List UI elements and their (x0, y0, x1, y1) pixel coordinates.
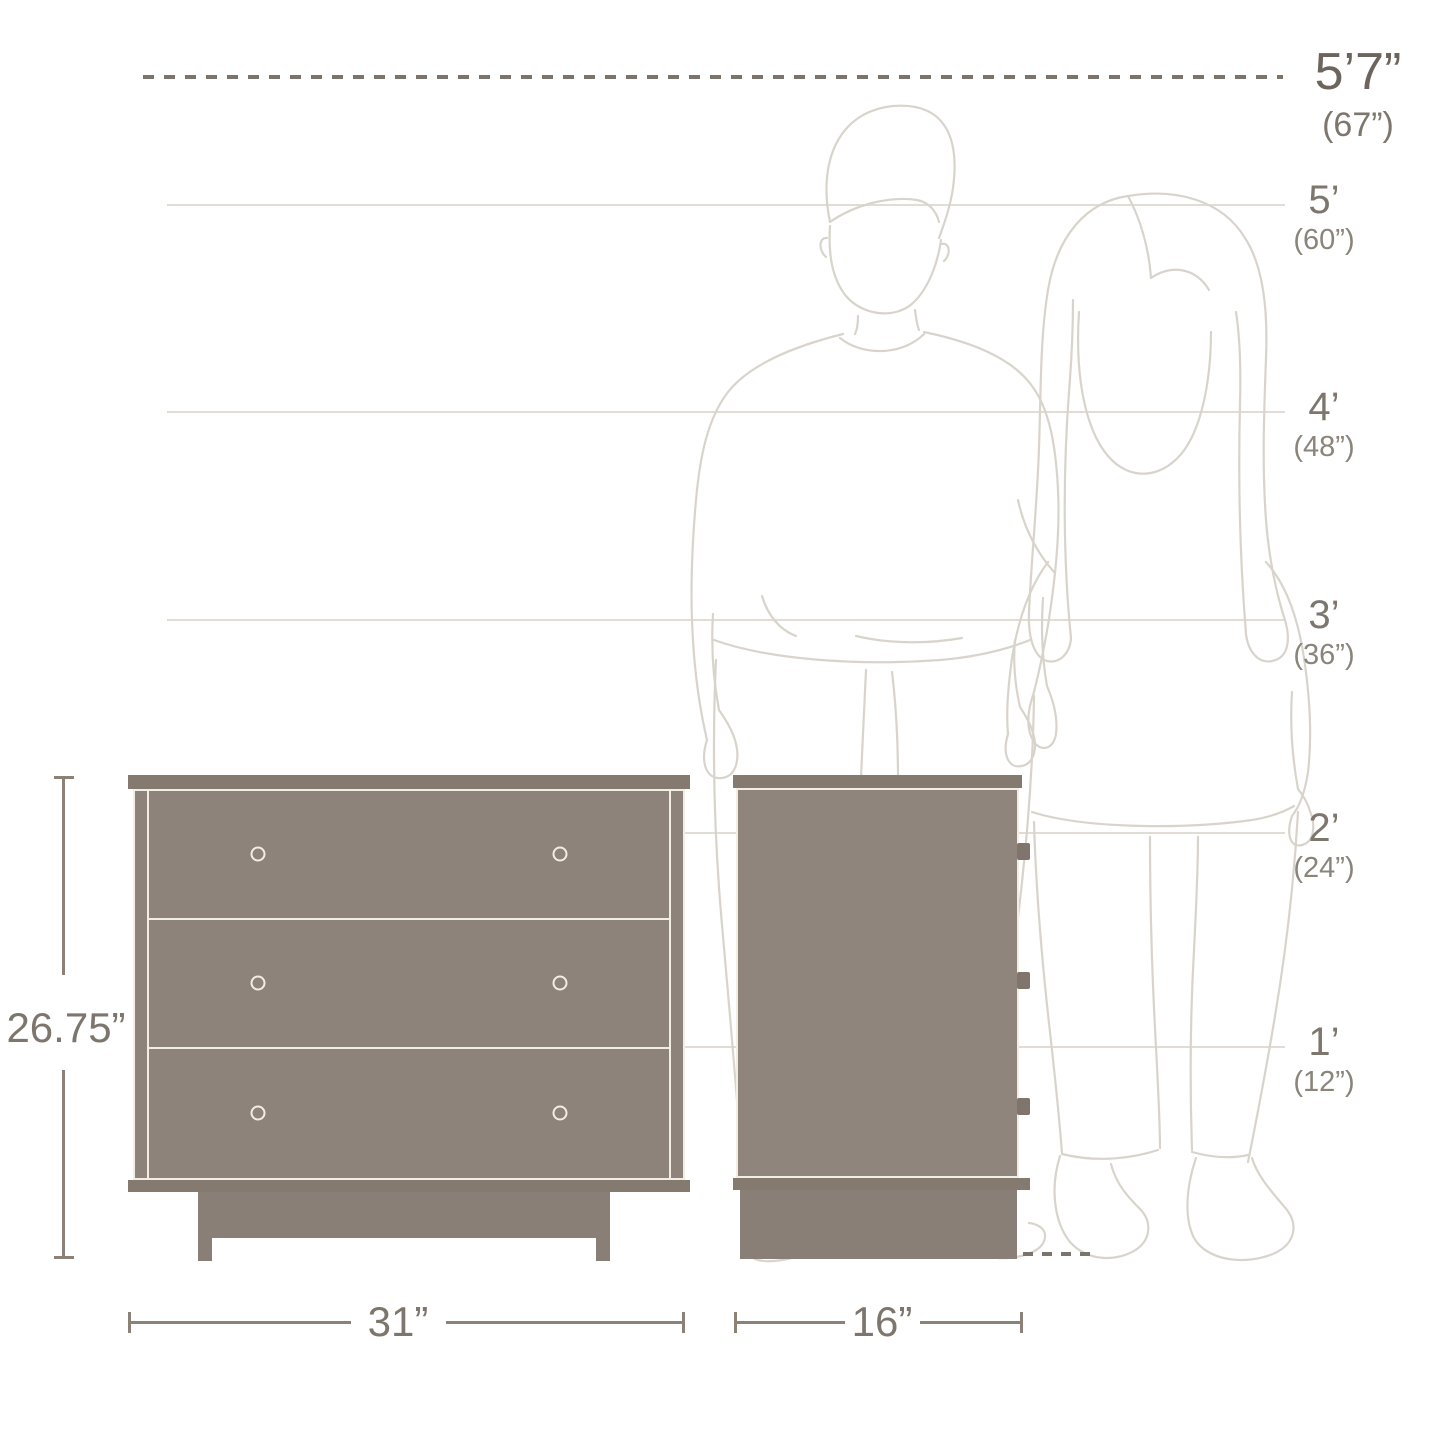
height-dimension-line (62, 1070, 65, 1258)
dresser-leg (596, 1192, 610, 1261)
dresser-side-top-edge (733, 775, 1022, 788)
height-marker-feet: 5’7” (1278, 46, 1438, 98)
height-marker-feet: 2’ (1244, 808, 1404, 848)
drawer-pull-icon (1017, 843, 1030, 860)
depth-dimension-line (920, 1321, 1022, 1324)
drawer-knob-icon (552, 976, 567, 991)
drawer-stack (147, 791, 671, 1178)
max-height-dashed-line (143, 75, 1283, 79)
drawer-bottom (149, 1049, 669, 1178)
height-marker-feet: 4’ (1244, 387, 1404, 427)
dresser-top-edge (128, 775, 690, 789)
drawer-top (149, 791, 669, 920)
height-marker-4ft: 4’ (48”) (1244, 387, 1404, 462)
dresser-side-body (736, 788, 1019, 1178)
height-marker-inches: (48”) (1244, 433, 1404, 462)
drawer-knob-icon (251, 976, 266, 991)
woman-outline (1006, 194, 1314, 1260)
height-marker-inches: (24”) (1244, 854, 1404, 883)
height-marker-5ft7: 5’7” (67”) (1278, 46, 1438, 142)
height-dimension-line (62, 777, 65, 975)
height-marker-1ft: 1’ (12”) (1244, 1022, 1404, 1097)
drawer-pull-icon (1017, 972, 1030, 989)
height-marker-feet: 3’ (1244, 595, 1404, 635)
dresser-side-view (733, 775, 1022, 1259)
drawer-knob-icon (251, 847, 266, 862)
height-marker-feet: 5’ (1244, 180, 1404, 220)
drawer-knob-icon (552, 1106, 567, 1121)
height-marker-inches: (60”) (1244, 226, 1404, 255)
width-dimension-line (446, 1321, 684, 1324)
height-marker-inches: (67”) (1278, 108, 1438, 142)
height-marker-inches: (36”) (1244, 641, 1404, 670)
drawer-knob-icon (251, 1106, 266, 1121)
height-dimension-label: 26.75” (0, 1007, 132, 1049)
drawer-pull-icon (1017, 1098, 1030, 1115)
dresser-leg (198, 1192, 212, 1261)
depth-dimension-tick (1020, 1312, 1023, 1333)
width-dimension-tick (682, 1312, 685, 1333)
dresser-bottom-edge (128, 1180, 690, 1192)
dresser-dimension-diagram: 5’7” (67”) 5’ (60”) 4’ (48”) 3’ (36”) 2’… (0, 0, 1445, 1445)
height-dimension-tick (54, 1256, 74, 1259)
dresser-front-view (128, 775, 690, 1260)
drawer-knob-icon (552, 847, 567, 862)
width-dimension-line (129, 1321, 351, 1324)
dresser-side-bottom-edge (733, 1178, 1030, 1190)
dresser-side-base (740, 1190, 1017, 1259)
drawer-middle (149, 920, 669, 1049)
width-dimension-label: 31” (338, 1301, 458, 1343)
floor-dashed-line (1023, 1252, 1093, 1256)
dresser-base-panel (212, 1192, 596, 1238)
dresser-front-body (133, 789, 685, 1180)
height-marker-inches: (12”) (1244, 1068, 1404, 1097)
height-marker-3ft: 3’ (36”) (1244, 595, 1404, 670)
height-marker-2ft: 2’ (24”) (1244, 808, 1404, 883)
height-marker-feet: 1’ (1244, 1022, 1404, 1062)
height-marker-5ft: 5’ (60”) (1244, 180, 1404, 255)
